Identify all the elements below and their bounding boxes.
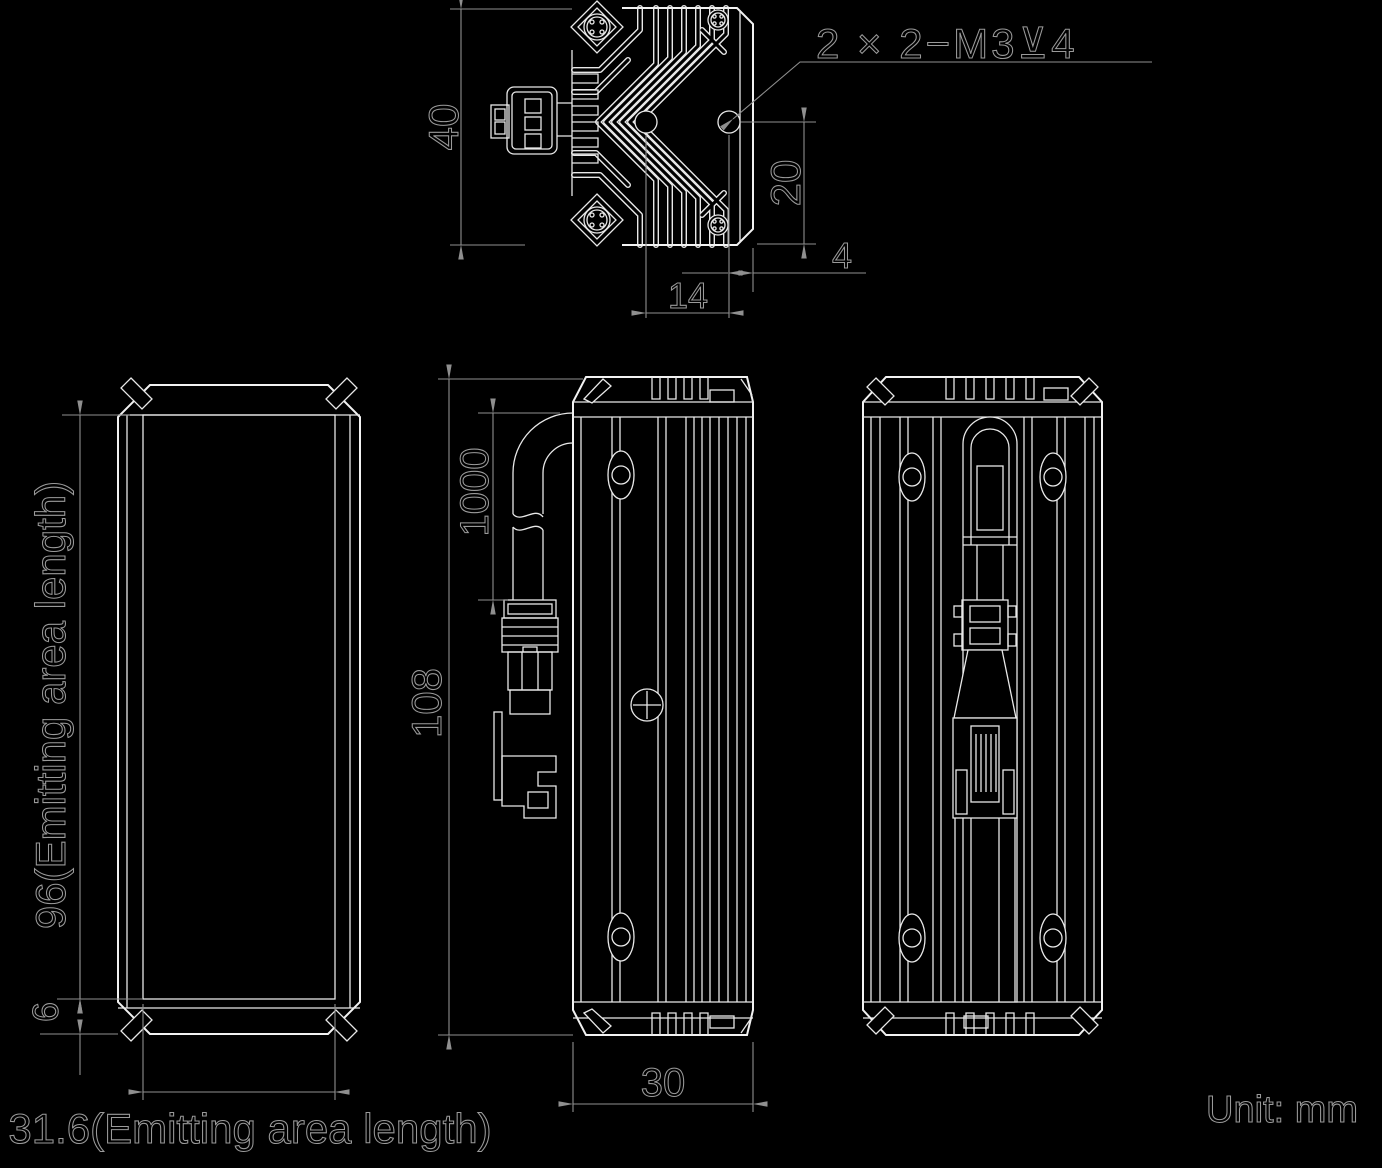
- cable-channel-back-view: [953, 417, 1017, 1002]
- technical-drawing: 40 20 4 14 2 × 2−M3⊻4 96(Emitting area l…: [0, 0, 1382, 1168]
- dim-40-label: 40: [420, 104, 467, 151]
- connector-top-view: [491, 87, 572, 154]
- emitting-window: [143, 415, 335, 999]
- corner-bumpers-front: [121, 378, 357, 1041]
- dim-31-6-emitting-width-label: 31.6(Emitting area length): [8, 1105, 491, 1152]
- left-fin-slots: [572, 74, 598, 163]
- dim-108-label: 108: [403, 668, 450, 738]
- front-view-outline: [118, 385, 360, 1034]
- dim-20-label: 20: [762, 160, 809, 207]
- dim-4-label: 4: [832, 235, 852, 276]
- unit-label: Unit: mm: [1206, 1089, 1358, 1131]
- dim-14-label: 14: [668, 275, 708, 316]
- drawing-canvas: 40 20 4 14 2 × 2−M3⊻4 96(Emitting area l…: [0, 0, 1382, 1168]
- dim-1000-cable-label: 1000: [453, 448, 497, 537]
- tapped-hole-annotation: 2 × 2−M3⊻4: [816, 20, 1078, 67]
- dim-6-label: 6: [25, 1002, 66, 1022]
- m3-leader-line: [733, 62, 1152, 119]
- dim-30-label: 30: [641, 1061, 686, 1105]
- cable-side-view: [513, 413, 573, 600]
- side-fins: [581, 417, 746, 1002]
- dim-96-emitting-length-label: 96(Emitting area length): [27, 481, 74, 929]
- side-view: [494, 377, 753, 1035]
- mounting-hole-center: [635, 111, 657, 133]
- mounting-hole-right: [718, 111, 740, 133]
- back-view: [863, 377, 1102, 1035]
- top-view: [491, 1, 753, 246]
- front-view: [118, 378, 360, 1041]
- connector-side-view: [494, 600, 558, 818]
